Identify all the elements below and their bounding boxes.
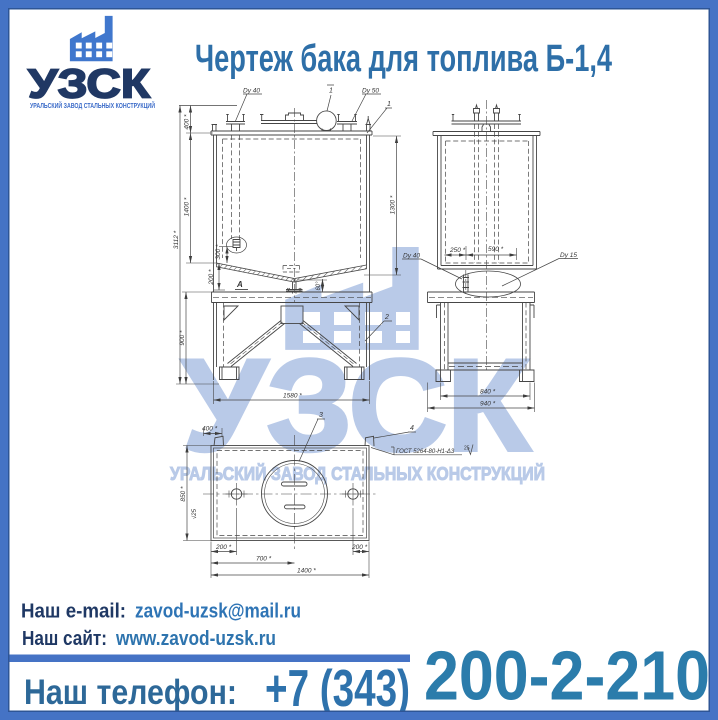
svg-text:3: 3 xyxy=(319,412,323,419)
svg-text:+7 (343): +7 (343) xyxy=(265,660,410,718)
svg-text:Наш сайт:: Наш сайт: xyxy=(22,628,107,650)
svg-text:Наш телефон:: Наш телефон: xyxy=(24,673,237,712)
svg-text:Dу 40: Dу 40 xyxy=(403,253,420,260)
svg-text:1: 1 xyxy=(387,101,391,108)
svg-text:1: 1 xyxy=(329,88,333,95)
svg-text:2: 2 xyxy=(384,314,389,321)
svg-text:Наш e-mail:: Наш e-mail: xyxy=(21,601,126,623)
svg-text:300 *: 300 * xyxy=(215,244,222,260)
svg-text:700 *: 700 * xyxy=(256,556,272,563)
svg-text:4: 4 xyxy=(410,425,414,432)
svg-text:400 *: 400 * xyxy=(184,114,191,130)
svg-text:1580 *: 1580 * xyxy=(283,393,302,400)
svg-text:ГОСТ 5264-80-Н1-Δ3: ГОСТ 5264-80-Н1-Δ3 xyxy=(396,449,455,455)
svg-text:250 *: 250 * xyxy=(449,247,466,254)
svg-text:1400 *: 1400 * xyxy=(297,568,316,575)
svg-text:Dу 15: Dу 15 xyxy=(560,252,577,259)
svg-text:3112 *: 3112 * xyxy=(173,230,180,249)
svg-text:400 *: 400 * xyxy=(202,426,218,433)
svg-text:А: А xyxy=(236,280,243,289)
svg-text:200 *: 200 * xyxy=(351,544,368,551)
svg-text:200 *: 200 * xyxy=(215,544,232,551)
svg-text:Dу 50: Dу 50 xyxy=(362,88,379,95)
svg-text:840 *: 840 * xyxy=(480,389,496,396)
svg-text:1400 *: 1400 * xyxy=(184,197,191,216)
svg-text:1300 *: 1300 * xyxy=(390,195,397,214)
svg-text:www.zavod-uzsk.ru: www.zavod-uzsk.ru xyxy=(115,628,276,650)
svg-text:УЗСК: УЗСК xyxy=(28,61,151,107)
svg-text:200-2-210: 200-2-210 xyxy=(424,637,710,715)
svg-text:590 *: 590 * xyxy=(488,246,504,253)
svg-text:√25: √25 xyxy=(191,508,198,519)
svg-text:60°: 60° xyxy=(316,281,322,291)
svg-text:Чертеж бака для топлива Б-1,4: Чертеж бака для топлива Б-1,4 xyxy=(195,38,612,80)
svg-text:УРАЛЬСКИЙ ЗАВОД СТАЛЬНЫХ КОНСТ: УРАЛЬСКИЙ ЗАВОД СТАЛЬНЫХ КОНСТРУКЦИЙ xyxy=(170,463,545,484)
svg-text:850 *: 850 * xyxy=(180,486,187,502)
svg-text:zavod-uzsk@mail.ru: zavod-uzsk@mail.ru xyxy=(135,601,301,623)
svg-text:940 *: 940 * xyxy=(480,401,496,408)
svg-text:200 *: 200 * xyxy=(208,269,215,286)
svg-text:УЗСК: УЗСК xyxy=(182,332,531,478)
svg-text:Dу 40: Dу 40 xyxy=(243,88,260,95)
svg-text:УРАЛЬСКИЙ ЗАВОД СТАЛЬНЫХ КОНСТ: УРАЛЬСКИЙ ЗАВОД СТАЛЬНЫХ КОНСТРУКЦИЙ xyxy=(30,101,155,110)
svg-text:900 *: 900 * xyxy=(179,330,186,346)
